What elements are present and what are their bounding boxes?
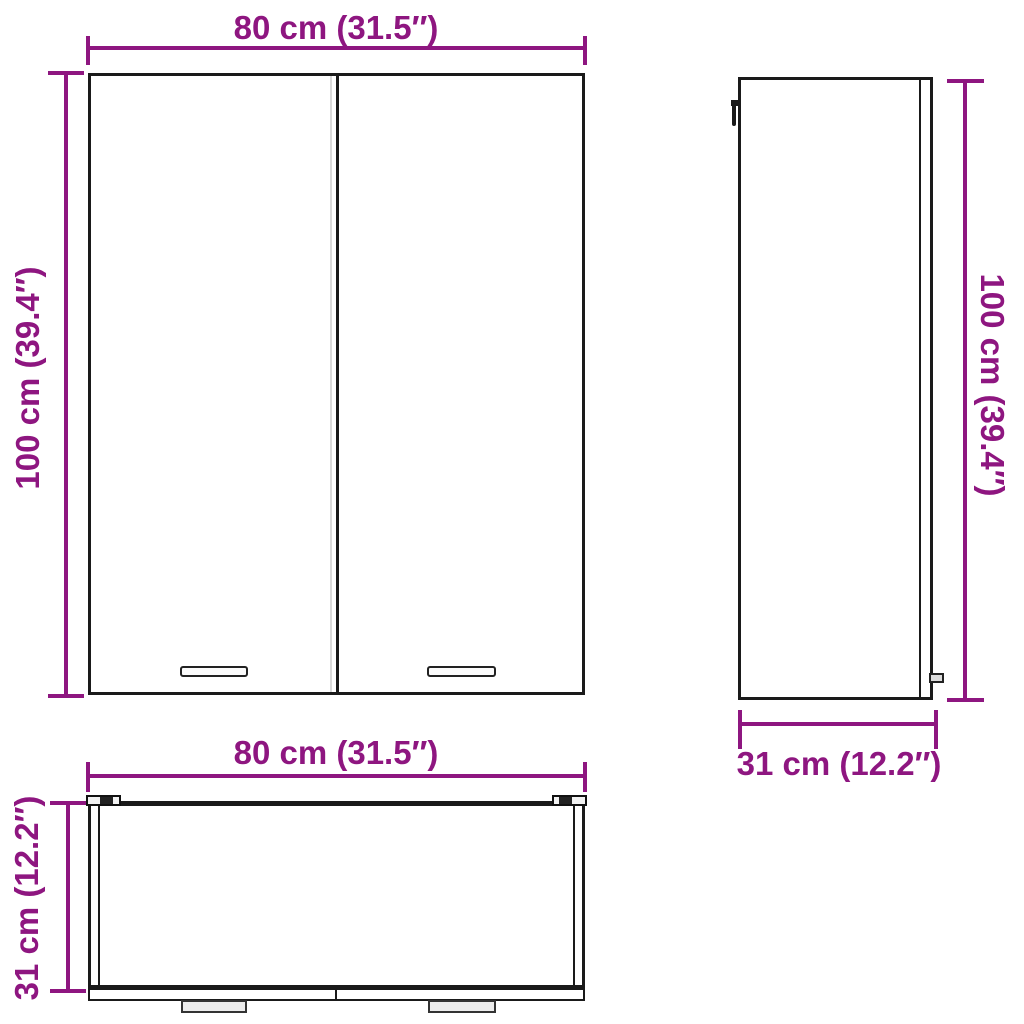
top-width-dimension-line bbox=[88, 774, 587, 778]
wall-bracket-core bbox=[100, 797, 113, 804]
top-width-dimension-label: 80 cm (31.5″) bbox=[136, 735, 536, 771]
left-door-handle-top bbox=[181, 1000, 247, 1013]
right-door-handle-top bbox=[428, 1000, 496, 1013]
wall-bracket-core bbox=[559, 797, 572, 804]
cabinet-top-outline bbox=[88, 801, 585, 988]
side-wall-line bbox=[98, 806, 100, 986]
dimension-diagram: 80 cm (31.5″) 100 cm (39.4″) 100 cm (39.… bbox=[0, 0, 1024, 1024]
dimension-tick bbox=[583, 762, 587, 792]
dimension-tick bbox=[86, 762, 90, 792]
dimension-tick bbox=[50, 801, 86, 805]
top-view: 80 cm (31.5″) 31 cm (12.2″) bbox=[0, 0, 1024, 1024]
side-wall-line bbox=[573, 806, 575, 986]
dimension-tick bbox=[50, 989, 86, 993]
door-strip-divider bbox=[335, 989, 337, 1000]
top-depth-dimension-line bbox=[66, 803, 70, 993]
top-depth-dimension-label: 31 cm (12.2″) bbox=[9, 748, 45, 1024]
